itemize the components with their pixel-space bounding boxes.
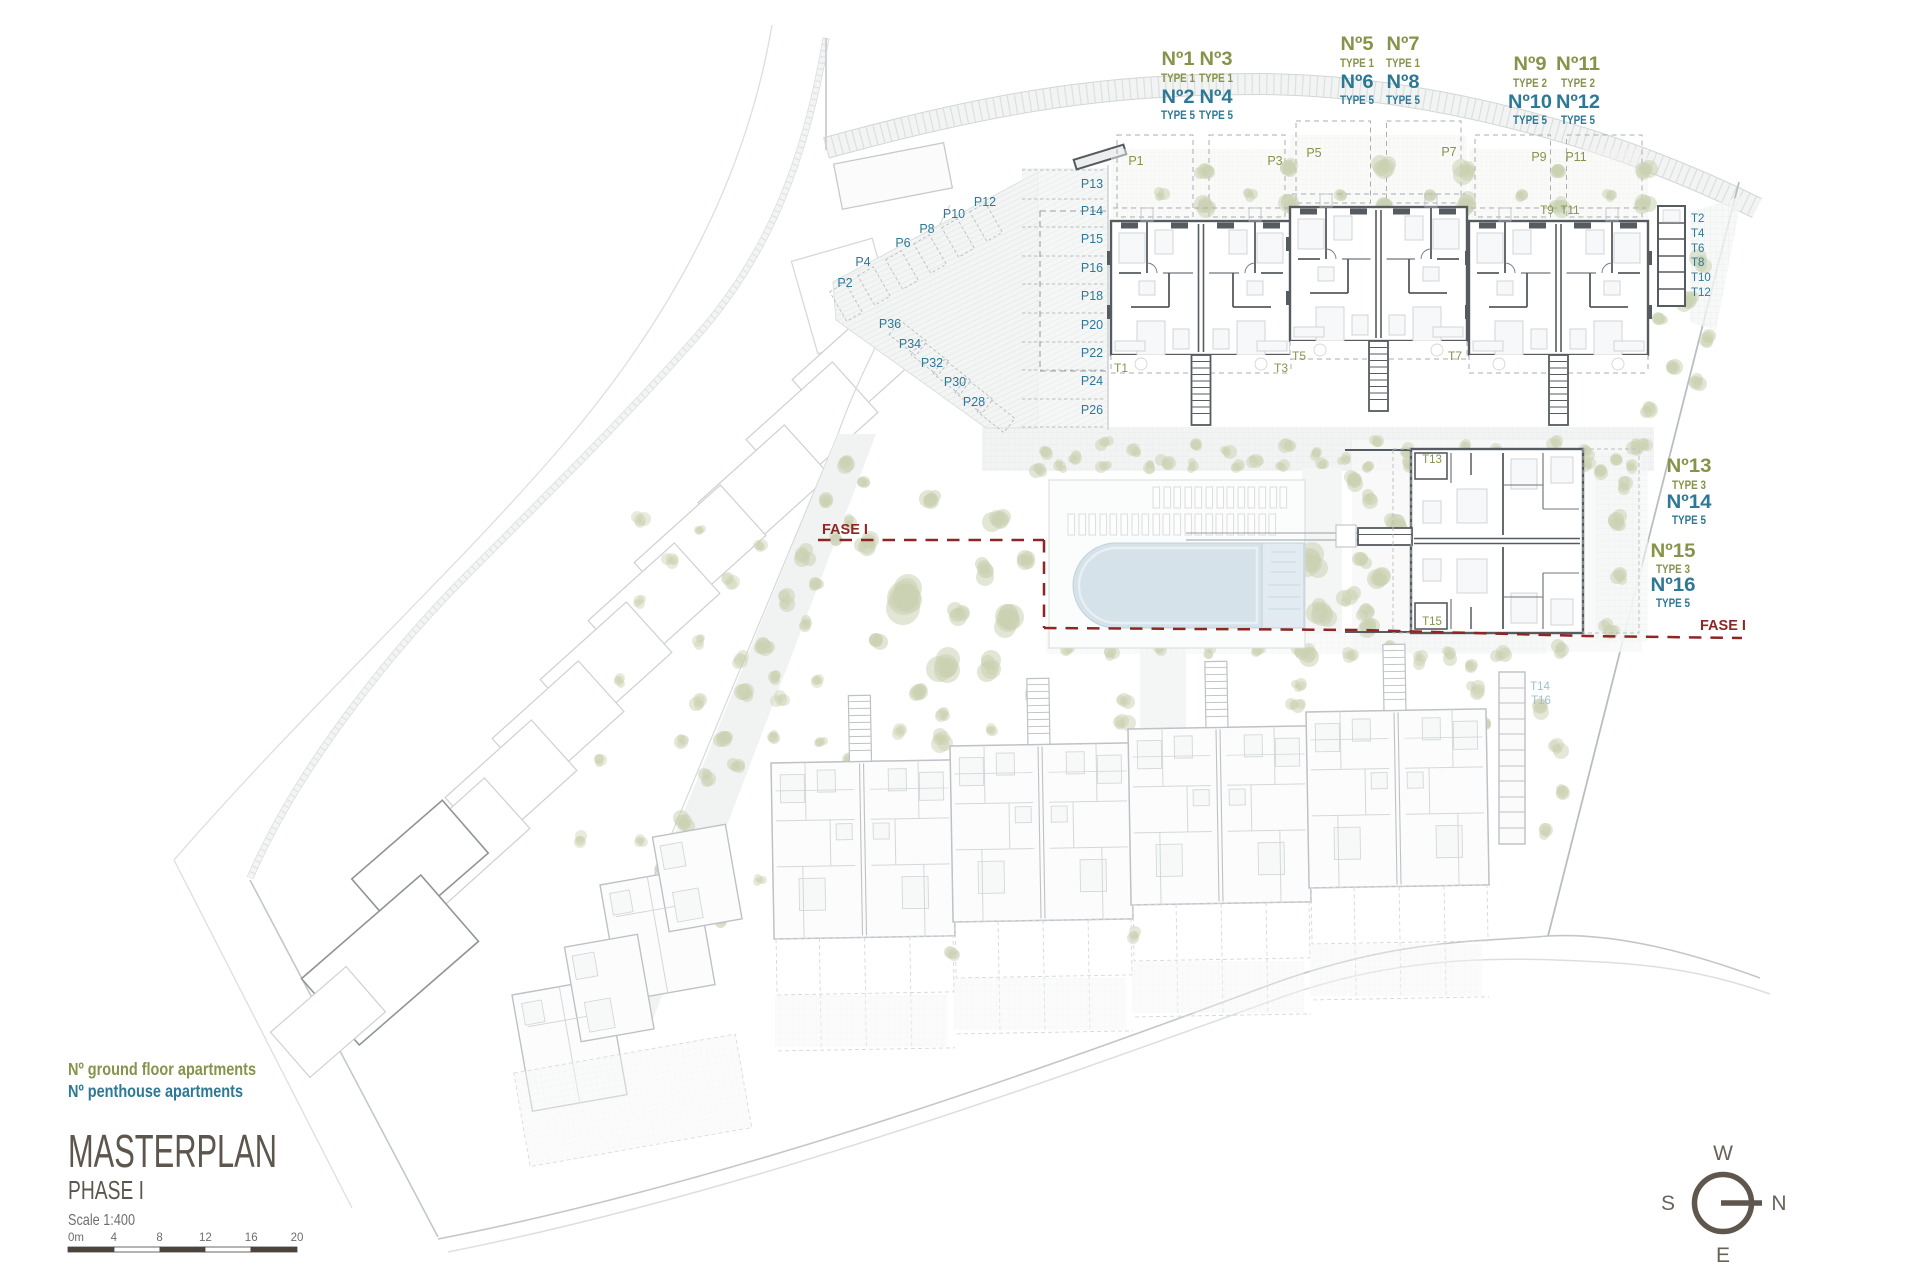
svg-text:TYPE 5: TYPE 5	[1199, 108, 1233, 122]
svg-text:T14: T14	[1530, 681, 1550, 693]
svg-text:T2: T2	[1691, 213, 1704, 225]
svg-text:PHASE I: PHASE I	[68, 1175, 144, 1205]
svg-text:8: 8	[156, 1232, 162, 1244]
svg-text:16: 16	[245, 1232, 258, 1244]
svg-text:Nº12: Nº12	[1556, 91, 1600, 113]
svg-text:P11: P11	[1565, 150, 1586, 164]
svg-text:P8: P8	[919, 222, 934, 236]
svg-text:P28: P28	[963, 395, 985, 409]
svg-text:P24: P24	[1081, 374, 1103, 388]
svg-text:P36: P36	[879, 317, 901, 331]
svg-text:N: N	[1771, 1192, 1786, 1215]
svg-text:Nº3: Nº3	[1200, 48, 1233, 70]
svg-text:Nº13: Nº13	[1667, 455, 1712, 477]
svg-text:T7: T7	[1448, 349, 1462, 363]
svg-text:P30: P30	[944, 375, 966, 389]
svg-text:Nº1: Nº1	[1162, 48, 1195, 70]
svg-text:4: 4	[111, 1232, 118, 1244]
svg-text:FASE I: FASE I	[822, 522, 868, 538]
svg-text:Nº7: Nº7	[1387, 33, 1420, 55]
svg-text:P10: P10	[943, 207, 965, 221]
svg-text:TYPE 5: TYPE 5	[1340, 93, 1374, 107]
svg-text:P6: P6	[895, 236, 910, 250]
svg-text:TYPE 1: TYPE 1	[1161, 71, 1195, 85]
svg-text:P15: P15	[1081, 232, 1103, 246]
svg-text:Nº16: Nº16	[1651, 574, 1696, 596]
svg-text:P7: P7	[1441, 145, 1456, 159]
svg-text:E: E	[1716, 1244, 1730, 1267]
svg-text:TYPE 3: TYPE 3	[1672, 478, 1706, 492]
svg-text:T8: T8	[1691, 257, 1704, 269]
svg-text:MASTERPLAN: MASTERPLAN	[68, 1125, 277, 1177]
svg-text:TYPE 5: TYPE 5	[1672, 513, 1706, 527]
svg-text:Nº9: Nº9	[1514, 53, 1547, 75]
svg-text:T1: T1	[1114, 361, 1128, 375]
svg-text:Nº11: Nº11	[1556, 53, 1600, 75]
svg-text:P34: P34	[899, 337, 921, 351]
svg-text:Nº6: Nº6	[1341, 71, 1374, 93]
svg-text:TYPE 2: TYPE 2	[1561, 76, 1595, 90]
svg-text:12: 12	[199, 1232, 212, 1244]
svg-text:TYPE 1: TYPE 1	[1340, 56, 1374, 70]
svg-text:Nº2: Nº2	[1162, 86, 1195, 108]
svg-text:Nº4: Nº4	[1200, 86, 1233, 108]
svg-text:P16: P16	[1081, 261, 1103, 275]
svg-text:T3: T3	[1274, 361, 1288, 375]
svg-text:T9: T9	[1540, 205, 1553, 217]
svg-text:T11: T11	[1561, 205, 1580, 217]
svg-text:P20: P20	[1081, 318, 1103, 332]
svg-text:P4: P4	[855, 255, 870, 269]
svg-text:Nº10: Nº10	[1508, 91, 1552, 113]
svg-text:P32: P32	[921, 356, 943, 370]
svg-text:T12: T12	[1691, 287, 1711, 299]
svg-text:Nº penthouse apartments: Nº penthouse apartments	[68, 1081, 243, 1101]
svg-text:TYPE 5: TYPE 5	[1561, 113, 1595, 127]
svg-text:T10: T10	[1691, 272, 1711, 284]
svg-text:Nº8: Nº8	[1387, 71, 1420, 93]
svg-text:T5: T5	[1292, 349, 1306, 363]
svg-text:T4: T4	[1691, 228, 1705, 240]
svg-text:Scale 1:400: Scale 1:400	[68, 1212, 135, 1229]
svg-text:TYPE 2: TYPE 2	[1513, 76, 1547, 90]
svg-text:Nº14: Nº14	[1667, 491, 1712, 513]
svg-text:T6: T6	[1691, 243, 1704, 255]
svg-text:P26: P26	[1081, 403, 1103, 417]
svg-text:Nº15: Nº15	[1651, 540, 1696, 562]
svg-text:P9: P9	[1531, 150, 1546, 164]
svg-text:T13: T13	[1422, 454, 1442, 466]
svg-text:TYPE 5: TYPE 5	[1161, 108, 1195, 122]
svg-text:P22: P22	[1081, 346, 1103, 360]
svg-text:20: 20	[291, 1232, 304, 1244]
svg-text:Nº5: Nº5	[1341, 33, 1374, 55]
svg-text:TYPE 1: TYPE 1	[1386, 56, 1420, 70]
svg-text:Nº ground floor apartments: Nº ground floor apartments	[68, 1059, 256, 1079]
svg-text:P14: P14	[1081, 204, 1103, 218]
svg-text:P2: P2	[837, 276, 852, 290]
svg-text:P5: P5	[1306, 146, 1321, 160]
svg-text:P12: P12	[974, 195, 996, 209]
svg-text:P1: P1	[1128, 154, 1143, 168]
svg-text:FASE I: FASE I	[1700, 618, 1746, 634]
svg-text:TYPE 5: TYPE 5	[1386, 93, 1420, 107]
svg-text:W: W	[1713, 1142, 1733, 1165]
svg-text:0m: 0m	[68, 1232, 84, 1244]
svg-text:TYPE 1: TYPE 1	[1199, 71, 1233, 85]
svg-text:S: S	[1661, 1192, 1675, 1215]
svg-text:P18: P18	[1081, 289, 1103, 303]
svg-text:TYPE 5: TYPE 5	[1656, 596, 1690, 610]
svg-text:TYPE 5: TYPE 5	[1513, 113, 1547, 127]
svg-text:T15: T15	[1422, 616, 1442, 628]
svg-text:T16: T16	[1531, 695, 1551, 707]
svg-text:P13: P13	[1081, 177, 1103, 191]
